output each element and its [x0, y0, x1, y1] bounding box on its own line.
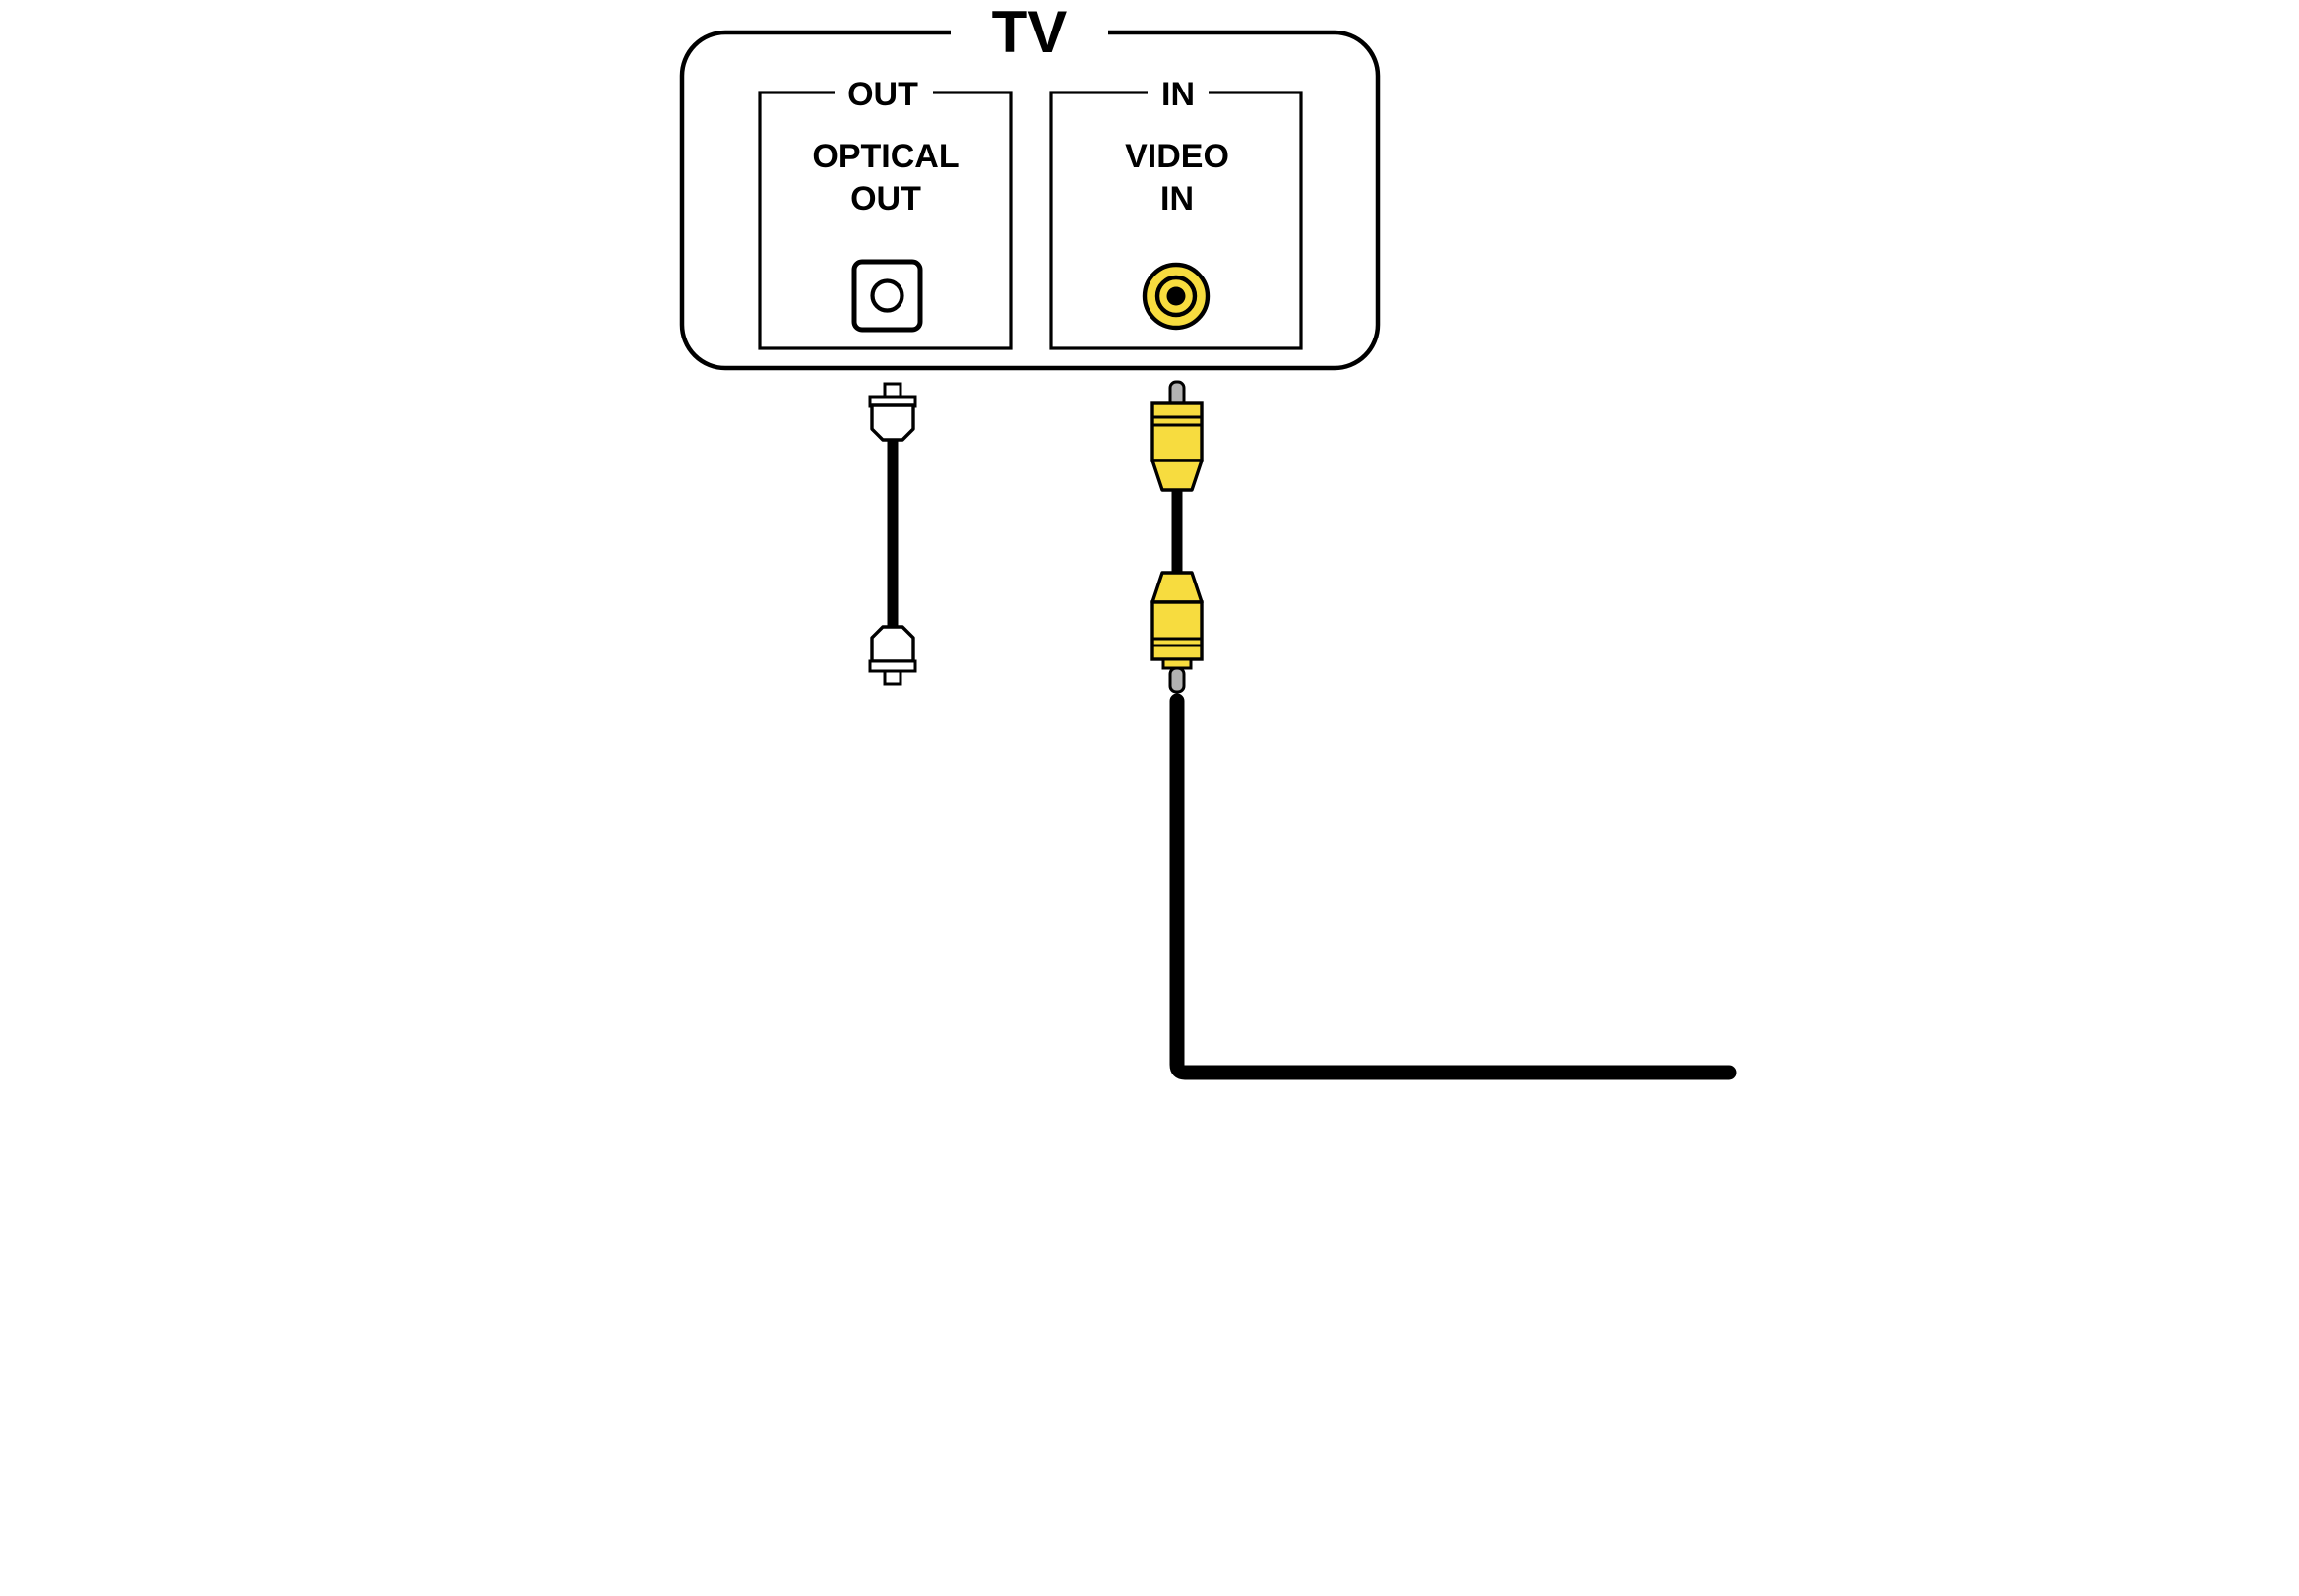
svg-text:OPTICAL: OPTICAL: [812, 138, 959, 175]
svg-text:OUT: OUT: [847, 76, 918, 113]
svg-text:OUT: OUT: [850, 180, 921, 217]
svg-text:VIDEO: VIDEO: [1125, 138, 1229, 175]
svg-text:TV: TV: [992, 0, 1068, 65]
svg-text:IN: IN: [1161, 76, 1195, 113]
svg-text:IN: IN: [1160, 180, 1194, 217]
